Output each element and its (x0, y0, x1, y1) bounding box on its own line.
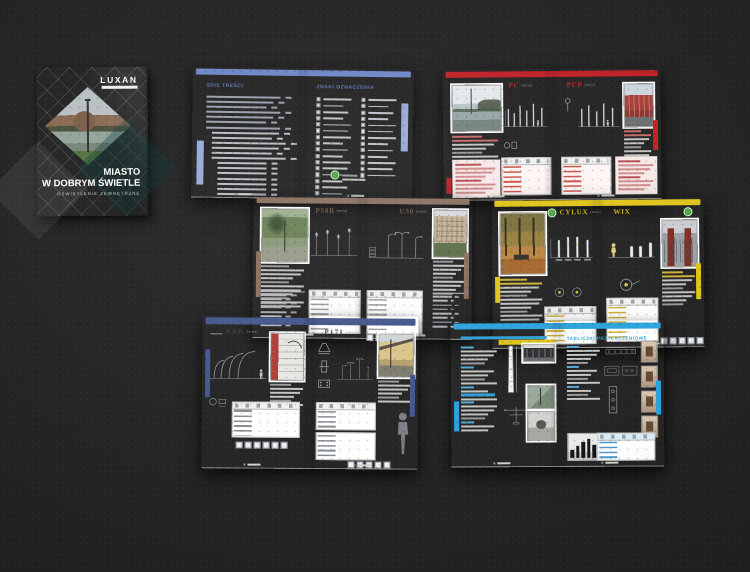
technical-drawing-cylux-bollards (548, 222, 594, 274)
text-line (624, 130, 641, 132)
technical-drawing-p171-poles (336, 340, 374, 396)
text-line (212, 147, 279, 150)
series-title-p171: P171 (324, 328, 344, 336)
page-footer-right (357, 464, 370, 466)
text-line (624, 138, 649, 140)
header-bar-blue (196, 69, 411, 78)
text-line (500, 287, 539, 289)
text-line (378, 381, 399, 383)
spec-icons-row (661, 337, 704, 344)
text-line (433, 269, 461, 271)
text-line (270, 388, 303, 390)
side-tab-right-navy (410, 375, 415, 417)
table-product-codes (234, 409, 252, 435)
series-suffix: (seria) (247, 329, 258, 333)
text-line (662, 291, 695, 293)
technical-drawing-u50-poles (367, 218, 425, 271)
left-page-title-bar (461, 336, 547, 339)
text-line (212, 142, 286, 145)
text-line (461, 409, 494, 411)
text-line (455, 176, 485, 178)
legend-title: ZNAKI OZNACZENIA (317, 84, 375, 91)
text-line (567, 366, 579, 368)
text-line (217, 167, 266, 170)
wix-section-diagram (618, 276, 642, 294)
spread-table-of-contents: SPIS TREŚCI ZNAKI OZNACZENIA (191, 66, 414, 200)
eco-badge-icon (548, 209, 555, 216)
page-footer-right (605, 461, 618, 463)
table-product-codes (563, 165, 581, 193)
text-line (461, 402, 474, 404)
text-line (461, 374, 488, 376)
series-title-ark: ARK (225, 327, 245, 335)
brand-logo-text: LUXAN (100, 76, 137, 85)
text-line (261, 285, 304, 287)
series-suffix: (seria) (416, 209, 427, 213)
text-line (662, 287, 683, 289)
page-footer-right (602, 194, 615, 197)
photo-house-double-lamp (378, 333, 414, 377)
text-line (212, 157, 286, 160)
series-title-p50b: P50B (315, 207, 334, 215)
text-line (433, 300, 448, 302)
text-line (361, 161, 399, 166)
text-line (361, 110, 399, 115)
page-footer-left (497, 462, 510, 464)
text-line (316, 97, 354, 102)
wix-description-text (662, 269, 696, 307)
text-line (218, 162, 267, 165)
text-line (662, 271, 683, 273)
eco-badge-caption (342, 173, 366, 183)
cover-subtitle: OŚWIETLENIE ZEWNĘTRZNE (42, 191, 140, 197)
side-tab-right-brown (464, 253, 469, 299)
eco-badge-icon (331, 171, 338, 178)
text-line (452, 140, 498, 142)
table-header-icons (502, 158, 550, 165)
text-line (452, 156, 498, 158)
technical-drawing-p50b-poles (309, 218, 359, 268)
text-line (316, 116, 354, 121)
photo-waterfront-lamp (452, 84, 502, 131)
text-line (461, 422, 474, 424)
terminal-strip-drawing (603, 345, 639, 357)
header-bar-yellow (494, 199, 700, 207)
text-line (433, 321, 452, 323)
connection-plates-title: TABLICZKI PRZYŁĄCZENIOWE (567, 336, 647, 341)
page-footer-left (492, 195, 505, 198)
table-header-row (598, 433, 654, 440)
photo-red-building (624, 83, 654, 127)
photo-fuse-box-1 (641, 340, 658, 362)
text-line (500, 279, 527, 281)
text-line (316, 129, 354, 134)
vertical-plate-drawing (605, 385, 621, 415)
spread-technical-info: TABLICZKI PRZYŁĄCZENIOWE (451, 320, 665, 467)
text-line (342, 179, 365, 181)
photo-connector-block (523, 344, 555, 362)
side-tab-right-red (653, 120, 658, 150)
text-line (433, 273, 456, 275)
text-line (500, 299, 542, 301)
text-line (361, 142, 399, 147)
text-line (618, 160, 640, 162)
pc-feature-list (452, 159, 500, 197)
text-line (378, 389, 408, 391)
photo-cable-connectors (567, 433, 599, 461)
text-line (618, 180, 653, 182)
text-line (662, 303, 683, 305)
text-line (452, 152, 482, 154)
text-line (618, 184, 650, 186)
text-line (206, 111, 280, 114)
text-line (461, 363, 485, 365)
text-line (433, 281, 464, 283)
text-line (261, 273, 301, 275)
text-line (217, 172, 266, 175)
text-line (361, 123, 399, 128)
side-tab-left (196, 141, 204, 185)
p171-description-text (378, 378, 412, 404)
pole-assembly-drawing (503, 344, 519, 394)
text-line (461, 378, 485, 380)
header-bar-brown (257, 197, 470, 205)
text-line (618, 168, 650, 170)
connection-plates-text (567, 344, 601, 402)
text-line (567, 350, 600, 352)
side-tab-right-cyan (656, 380, 661, 414)
text-line (261, 281, 289, 283)
ark-spec-table (232, 401, 300, 437)
text-line (361, 154, 399, 159)
text-line (567, 370, 597, 372)
text-line (261, 311, 287, 313)
series-title-u50: U50 (399, 207, 414, 215)
text-line (455, 164, 481, 166)
header-bar-cyan (454, 322, 661, 329)
text-line (433, 261, 453, 263)
text-line (206, 96, 280, 99)
text-line (212, 136, 272, 139)
text-line (500, 307, 531, 309)
series-suffix: (seria) (337, 208, 348, 212)
text-line (500, 295, 527, 297)
text-line (567, 374, 591, 376)
scale-person-silhouette (611, 243, 616, 257)
table-product-codes (318, 410, 336, 428)
text-line (261, 303, 287, 305)
text-line (316, 147, 354, 152)
text-line (316, 122, 354, 127)
text-line (316, 110, 354, 115)
text-line (618, 164, 653, 166)
text-line (618, 176, 640, 178)
text-line (378, 397, 399, 399)
table-header-icons (545, 307, 595, 314)
text-line (360, 167, 398, 172)
photo-foundation (527, 411, 555, 441)
text-line (361, 136, 399, 141)
photo-building-curved-lamp (270, 333, 304, 381)
photo-installation-1 (527, 385, 555, 409)
text-line (212, 131, 279, 134)
bracket-detail-drawing (561, 97, 575, 113)
pcp-feature-list (615, 156, 657, 194)
text-line (461, 390, 488, 392)
p171-spec-table-1 (316, 402, 376, 430)
text-line (567, 394, 588, 396)
series-suffix: (seria) (590, 209, 601, 213)
text-line (217, 188, 266, 191)
text-line (624, 150, 651, 152)
text-line (567, 386, 579, 388)
text-line (261, 265, 289, 267)
table-product-codes (599, 441, 617, 459)
series-suffix: (seria) (521, 83, 532, 87)
text-line (461, 347, 474, 349)
text-line (500, 303, 539, 305)
legend-column-2 (360, 98, 399, 180)
text-line (206, 126, 280, 129)
scale-person-silhouette (260, 369, 263, 378)
text-line (461, 386, 474, 388)
plate-drawings (603, 361, 639, 381)
series-title-pcp: PCP (567, 81, 583, 89)
text-line (567, 362, 588, 364)
text-line (662, 279, 692, 281)
text-line (261, 269, 304, 271)
text-line (662, 283, 686, 285)
side-tab-left-red (446, 178, 451, 194)
watermark-person-silhouette (394, 411, 412, 457)
text-line (455, 192, 485, 194)
text-line (316, 135, 354, 140)
text-line (567, 390, 591, 392)
text-line (361, 98, 399, 103)
text-line (433, 304, 452, 306)
text-line (261, 277, 293, 279)
text-line (567, 378, 588, 380)
text-line (662, 275, 695, 277)
text-line (452, 148, 486, 150)
grounding-instructions-text (461, 399, 499, 433)
text-line (624, 142, 644, 144)
table-product-codes (503, 165, 521, 193)
text-line (206, 116, 273, 119)
text-line (500, 315, 542, 317)
table-header-icons (607, 298, 657, 305)
text-line (433, 317, 448, 319)
text-line (461, 382, 497, 384)
text-line (433, 285, 461, 287)
technical-drawing-wix-bollards (606, 225, 656, 267)
text-line (361, 129, 399, 134)
text-line (261, 298, 282, 300)
text-line (500, 283, 542, 285)
side-tab-right-yellow (696, 263, 701, 299)
scale-person-silhouette (607, 120, 609, 127)
text-line (455, 172, 492, 174)
series-title-wix: WIX (613, 208, 630, 216)
text-line (455, 180, 481, 182)
text-line (261, 307, 282, 309)
text-line (452, 136, 482, 138)
pc-spec-table (501, 157, 551, 195)
series-title-pc: PC (509, 81, 520, 89)
text-line (361, 104, 399, 109)
side-tab-right (401, 103, 409, 151)
text-line (316, 141, 354, 146)
table-product-codes (318, 434, 336, 458)
text-line (618, 188, 644, 190)
u50-description-text (433, 259, 465, 297)
text-line (433, 313, 452, 315)
text-line (315, 166, 353, 171)
text-line (270, 392, 300, 394)
text-line (217, 177, 266, 180)
text-line (618, 172, 644, 174)
technical-drawing-pc-poles (503, 93, 549, 137)
text-line (662, 299, 686, 301)
text-line (455, 188, 492, 190)
series-suffix: (seria) (346, 330, 357, 334)
detail-drawings-column (316, 340, 332, 396)
pcp-spec-table (561, 156, 611, 194)
cross-section-diagrams (550, 284, 590, 300)
text-line (567, 382, 600, 384)
technical-drawing-ark-arcs (208, 339, 268, 391)
text-line (567, 354, 597, 356)
text-line (461, 367, 474, 369)
p171-spec-table-2 (316, 432, 376, 460)
brand-logo-underline (102, 85, 138, 89)
text-line (433, 289, 456, 291)
text-line (461, 425, 494, 427)
text-line (270, 384, 291, 386)
technical-drawing-pcp-poles (577, 92, 621, 136)
text-line (361, 117, 399, 122)
photo-park-ornate-lamp (261, 208, 308, 262)
scale-person-silhouette (537, 120, 539, 127)
brochure-cover: LUXAN MIASTO W DOBRYM ŚWIETLE OŚWIETLENI… (36, 67, 148, 217)
text-line (567, 358, 591, 360)
legend-column-1 (315, 97, 354, 198)
text-line (624, 146, 641, 148)
text-line (461, 405, 497, 407)
cover-title-block: MIASTO W DOBRYM ŚWIETLE OŚWIETLENIE ZEWN… (42, 167, 141, 196)
photo-autumn-park-bench (499, 212, 546, 274)
text-line (433, 296, 452, 298)
text-line (261, 294, 287, 296)
text-line (315, 185, 353, 190)
header-bar-red (445, 70, 657, 78)
text-line (662, 295, 692, 297)
text-line (316, 154, 354, 159)
text-line (206, 121, 266, 124)
header-bar-navy (205, 317, 415, 325)
text-line (461, 429, 488, 431)
text-line (206, 101, 273, 104)
text-line (316, 160, 354, 165)
side-tab-left-navy (205, 349, 210, 397)
text-line (567, 346, 579, 348)
text-line (452, 144, 494, 146)
brand-logo: LUXAN (100, 76, 137, 90)
photo-tenement-street (433, 210, 467, 258)
side-tab-left-cyan (454, 402, 459, 432)
base-detail-drawing (208, 395, 228, 411)
page-footer-left (239, 193, 252, 196)
scene-dark-surface: { "cover": { "logo": "LUXAN", "title1": … (0, 0, 750, 572)
toc-entries-list (205, 96, 290, 199)
text-line (461, 418, 485, 420)
text-line (461, 370, 494, 372)
photo-gate-bollard (662, 219, 698, 267)
series-title-cylux: CYLUX (559, 208, 588, 216)
text-line (461, 359, 488, 361)
connection-plates-table (597, 432, 655, 460)
text-line (433, 277, 453, 279)
text-line (455, 184, 495, 186)
left-page-subtitle-bar (461, 393, 495, 396)
text-line (455, 168, 495, 170)
spread-pc-pcp: PC(seria) PCP(seria) (442, 68, 661, 201)
text-line (270, 396, 294, 398)
text-line (342, 175, 357, 177)
text-line (217, 182, 266, 185)
text-line (378, 385, 411, 387)
text-line (461, 350, 497, 352)
text-line (432, 326, 447, 328)
side-tab-left-brown (256, 251, 261, 297)
series-suffix: (seria) (585, 82, 596, 86)
text-line (433, 308, 448, 310)
text-line (461, 354, 494, 356)
text-line (378, 401, 411, 403)
text-line (378, 393, 402, 395)
text-line (500, 291, 531, 293)
eco-badge-icon (684, 208, 691, 215)
side-tab-left-yellow (495, 277, 500, 303)
spec-icons-row (236, 441, 288, 448)
text-line (624, 134, 651, 136)
text-line (316, 103, 354, 108)
text-line (361, 148, 399, 153)
text-line (206, 106, 266, 109)
toc-title: SPIS TREŚCI (207, 83, 244, 90)
text-line (461, 414, 488, 416)
text-line (212, 152, 272, 155)
text-line (500, 311, 527, 313)
dimension-detail-drawing (503, 139, 519, 151)
title-rule (210, 333, 222, 334)
text-line (567, 398, 600, 400)
spread-ark-p171: ARK(seria) P171(seria) (201, 315, 418, 470)
table-header-icons (562, 157, 610, 164)
cover-title-line2: W DOBRYM ŚWIETLE (42, 178, 140, 190)
text-line (433, 265, 464, 267)
page-footer-left (247, 463, 260, 465)
cover-fold-edge (144, 67, 148, 216)
cylux-description-text (500, 276, 544, 322)
